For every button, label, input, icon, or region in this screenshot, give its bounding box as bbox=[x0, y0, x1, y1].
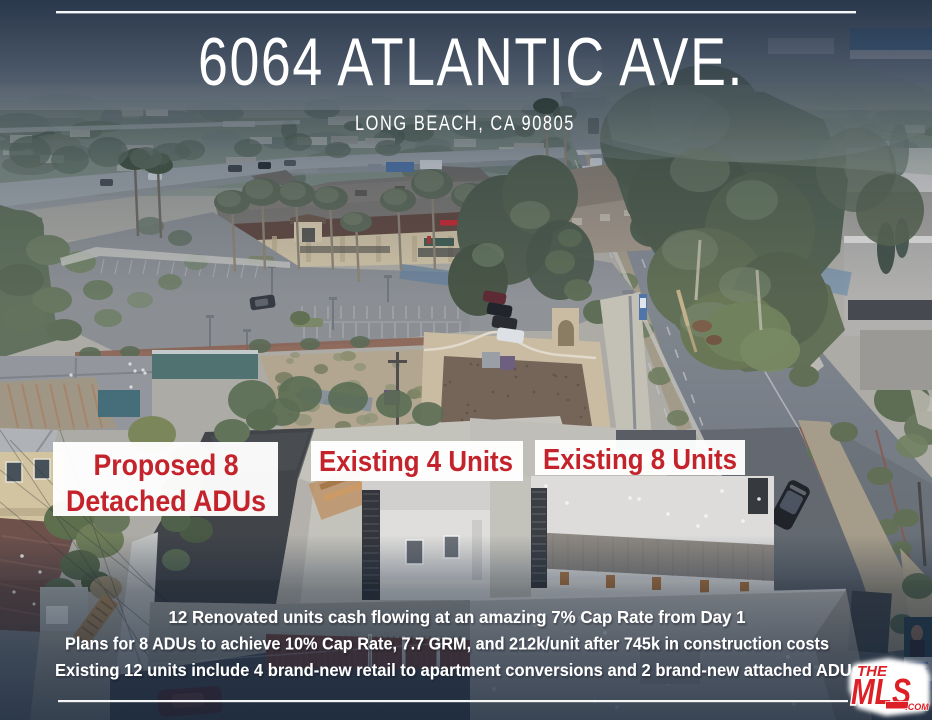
svg-text:LONG BEACH, CA 90805: LONG BEACH, CA 90805 bbox=[355, 112, 575, 135]
svg-text:6064 ATLANTIC AVE.: 6064 ATLANTIC AVE. bbox=[198, 24, 744, 100]
svg-text:Existing 8 Units: Existing 8 Units bbox=[543, 444, 737, 476]
svg-text:12 Renovated units cash flowin: 12 Renovated units cash flowing at an am… bbox=[169, 607, 746, 627]
svg-text:Detached ADUs: Detached ADUs bbox=[66, 485, 266, 518]
svg-text:Existing 12 units include 4 br: Existing 12 units include 4 brand-new re… bbox=[55, 660, 861, 680]
svg-text:Proposed 8: Proposed 8 bbox=[94, 449, 239, 482]
svg-text:.COM: .COM bbox=[905, 702, 929, 712]
svg-text:Plans for 8 ADUs to achieve 10: Plans for 8 ADUs to achieve 10% Cap Rate… bbox=[65, 634, 829, 654]
svg-text:Existing 4 Units: Existing 4 Units bbox=[319, 446, 513, 478]
